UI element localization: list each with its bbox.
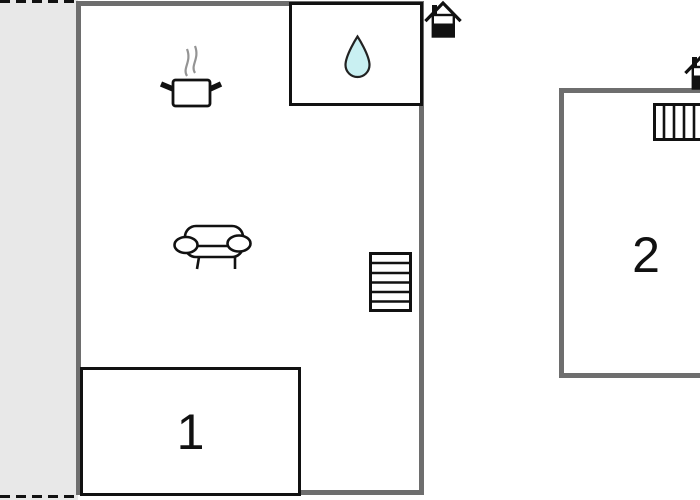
steam-line [186, 49, 189, 76]
pot-handle-left [161, 84, 173, 89]
room-1: 1 [80, 367, 301, 496]
room-1-label: 1 [177, 407, 205, 457]
room-2-label: 2 [630, 230, 662, 280]
terrace-dashed-boundary-bottom [0, 495, 78, 498]
steam-line [194, 46, 197, 73]
water-drop-shape [346, 37, 370, 78]
entrance-house-icon [423, 1, 461, 38]
sofa-legs [197, 257, 235, 269]
entrance-house-icon [683, 53, 700, 90]
floor-plan: 1 2 [0, 0, 700, 500]
sofa-armrest-right [228, 236, 251, 252]
cooking-pot-icon [158, 40, 222, 108]
terrace-dashed-boundary-top [0, 0, 78, 3]
sofa-armrest-left [175, 237, 198, 253]
house-body-fill [693, 76, 700, 89]
stairs-icon [653, 103, 700, 141]
terrace-area [0, 0, 78, 500]
sofa-icon [172, 222, 252, 270]
stairs-icon [369, 252, 412, 312]
pot-handle-right [210, 84, 221, 89]
pot-body [173, 80, 210, 106]
house-body-fill [433, 24, 454, 37]
water-drop-icon [343, 34, 372, 80]
